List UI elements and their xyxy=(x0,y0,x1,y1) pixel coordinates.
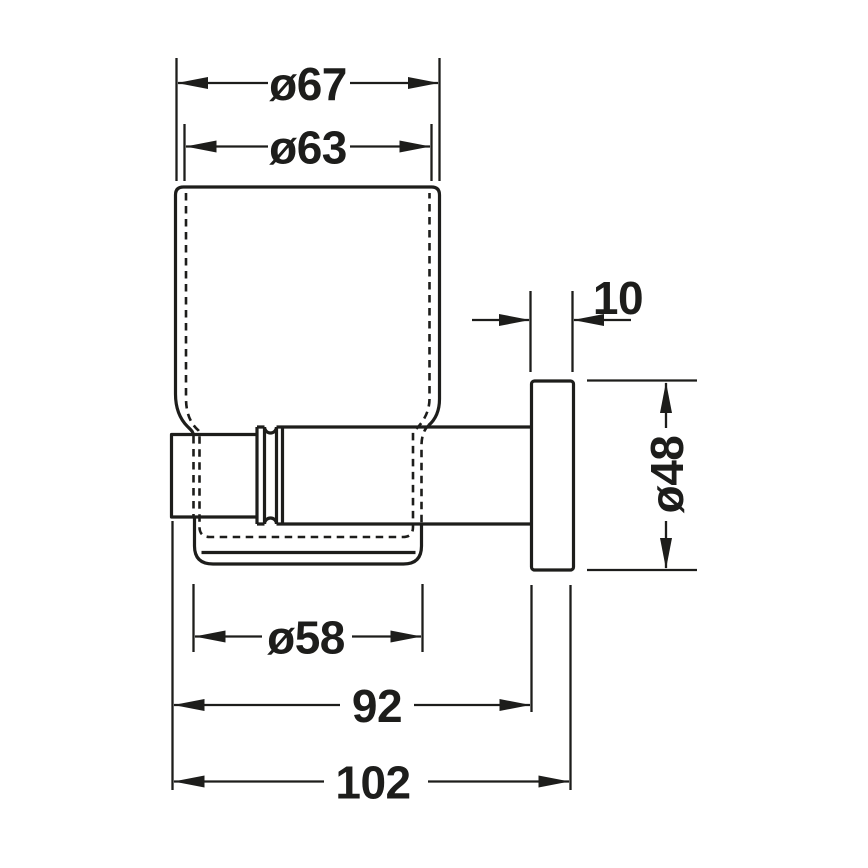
arrowhead-left-depth92 xyxy=(174,699,205,711)
arrowhead-right-dia58 xyxy=(391,631,422,643)
wall-plate xyxy=(532,381,574,570)
dimension-dia63: ø63 xyxy=(185,122,432,182)
dimension-label-depth92: 92 xyxy=(352,680,402,732)
dimension-label-thickness10: 10 xyxy=(593,272,643,324)
dimension-dia48: ø48 xyxy=(587,381,697,571)
mounting-arm xyxy=(283,427,532,524)
arrowhead-left-depth102 xyxy=(174,776,205,788)
technical-drawing: ø67 ø63 10 ø48 xyxy=(0,0,868,868)
arrowhead-left-dia63 xyxy=(186,141,217,153)
dimension-dia58: ø58 xyxy=(194,584,423,664)
dimension-label-dia67: ø67 xyxy=(269,58,347,110)
holder-ring-flange xyxy=(257,427,283,524)
arrowhead-right-dia63 xyxy=(400,141,431,153)
dimension-label-dia58: ø58 xyxy=(267,612,345,664)
glass-outer-wall-hidden-right xyxy=(422,426,429,524)
extension-lines-thickness10 xyxy=(531,291,573,372)
arrowhead-top-dia48 xyxy=(660,382,672,413)
arrowhead-left-thickness10 xyxy=(499,314,530,326)
glass-hidden-edges xyxy=(186,193,430,537)
dimension-thickness10: 10 xyxy=(472,272,643,372)
holder-ring-left-band xyxy=(172,435,258,518)
glass-outline xyxy=(176,187,440,436)
glass-tumbler xyxy=(176,187,440,564)
arrowhead-right-depth92 xyxy=(500,699,531,711)
arrowhead-right-dia67 xyxy=(408,77,439,89)
arrowhead-right-depth102 xyxy=(539,776,570,788)
arrowhead-left-dia58 xyxy=(195,631,226,643)
holder-ring xyxy=(172,427,283,524)
dimension-label-dia48: ø48 xyxy=(641,436,693,514)
arrowhead-bottom-dia48 xyxy=(660,538,672,569)
dimension-label-dia63: ø63 xyxy=(269,122,347,174)
arrowhead-left-dia67 xyxy=(177,77,208,89)
dimension-label-depth102: 102 xyxy=(335,757,410,809)
dimension-depth92: 92 xyxy=(174,585,532,732)
holder-ring-groove-top-notch xyxy=(265,427,277,433)
mounting-arm-lines xyxy=(283,427,532,524)
technical-drawing-page: ø67 ø63 10 ø48 xyxy=(0,0,868,868)
glass-inner-wall-outline xyxy=(186,193,430,537)
holder-ring-groove-bottom-notch xyxy=(265,518,277,524)
